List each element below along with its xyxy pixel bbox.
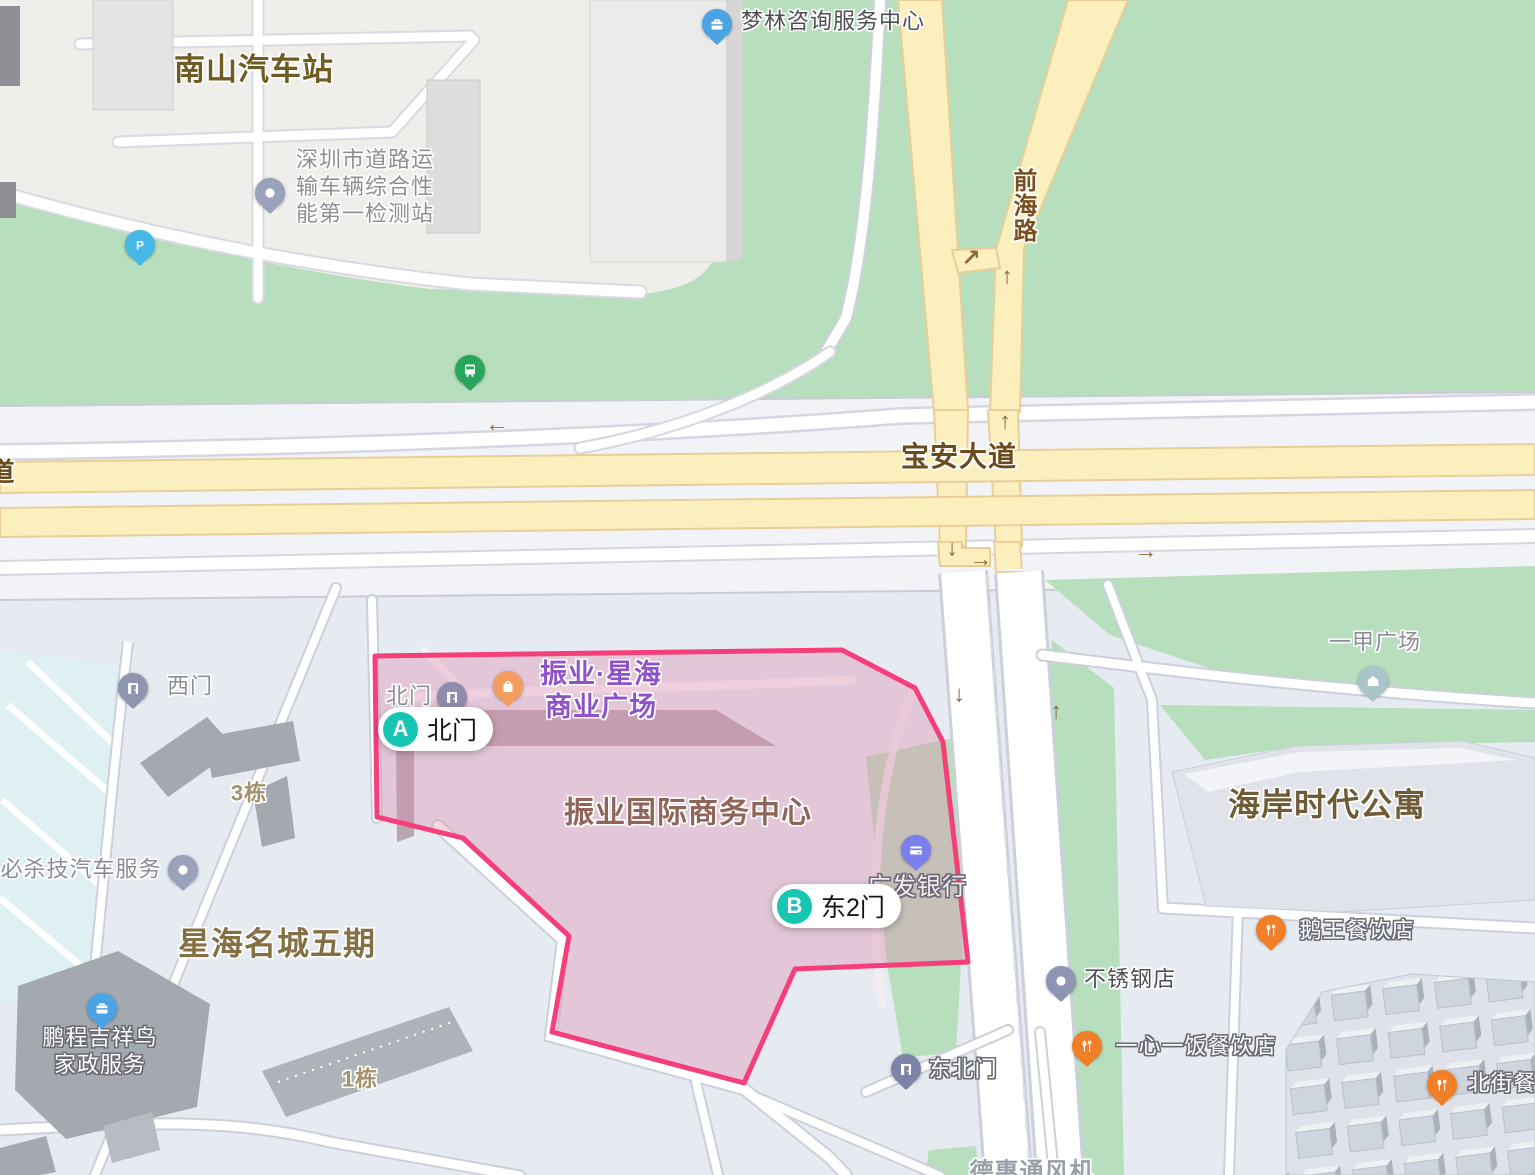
pengcheng-housekeeping-pin[interactable] bbox=[87, 993, 117, 1023]
guangfa-bank-pin[interactable] bbox=[901, 835, 931, 865]
yijia-plaza-pin[interactable] bbox=[1358, 666, 1388, 696]
bus-stop-pin[interactable] bbox=[455, 355, 485, 385]
northeast-gate-pin[interactable] bbox=[891, 1054, 921, 1084]
arrow-ne-1: ↗ bbox=[961, 245, 980, 272]
gate-marker-b[interactable]: B 东2门 bbox=[772, 884, 901, 928]
gate-b-label: 东2门 bbox=[821, 888, 885, 924]
gate-a-label: 北门 bbox=[427, 711, 477, 747]
arrow-down-2: ↓ bbox=[953, 681, 965, 708]
map-base-layer bbox=[0, 0, 1535, 1175]
haian-shidai-apartment-label: 海岸时代公寓 bbox=[1228, 785, 1426, 824]
haian-shidai-building bbox=[1172, 741, 1535, 912]
parking-pin[interactable]: P bbox=[125, 230, 155, 260]
bishaji-auto-service-label[interactable]: 必杀技汽车服务 bbox=[0, 857, 161, 884]
northeast-gate-label[interactable]: 东北门 bbox=[928, 1057, 997, 1084]
gate-a-badge: A bbox=[383, 712, 418, 747]
gate-marker-a[interactable]: A 北门 bbox=[378, 707, 493, 751]
building-3-label: 3栋 bbox=[231, 781, 267, 808]
building-1-label: 1栋 bbox=[342, 1067, 378, 1094]
arrow-right-1: → bbox=[970, 546, 993, 573]
arrow-up-2: ↑ bbox=[1001, 263, 1013, 290]
yixinyifan-restaurant-label[interactable]: 一心一饭餐饮店 bbox=[1115, 1034, 1276, 1061]
map-canvas[interactable]: A 北门 B 东2门 南山汽车站星海名城五期海岸时代公寓振业国际商务中心3栋1栋… bbox=[0, 0, 1535, 1175]
arrow-up-1: ↑ bbox=[999, 408, 1011, 435]
yixinyifan-restaurant-pin[interactable] bbox=[1072, 1031, 1102, 1061]
yijia-plaza-label[interactable]: 一甲广场 bbox=[1329, 630, 1421, 657]
arrow-down-1: ↓ bbox=[946, 535, 958, 562]
bishaji-auto-service-pin[interactable] bbox=[168, 855, 198, 885]
menglin-consulting-label[interactable]: 梦林咨询服务中心 bbox=[741, 9, 925, 36]
arrow-left-1: ← bbox=[486, 411, 509, 438]
dehui-fan-label: 德惠通风机 bbox=[970, 1157, 1095, 1175]
road-name-partial-label: 道 bbox=[0, 457, 16, 489]
west-gate-label[interactable]: 西门 bbox=[167, 674, 213, 701]
arrow-right-2: → bbox=[1135, 538, 1158, 565]
qianhai-road-label: 前海路 bbox=[1010, 168, 1034, 243]
arrow-up-3: ↑ bbox=[1050, 698, 1062, 725]
zhenye-intl-business-center-label: 振业国际商务中心 bbox=[564, 796, 812, 833]
stainless-steel-shop-pin[interactable] bbox=[1046, 966, 1076, 996]
zhenye-xinghai-plaza-label[interactable]: 振业·星海商业广场 bbox=[540, 658, 662, 724]
west-gate-pin[interactable] bbox=[118, 673, 148, 703]
shenzhen-vehicle-test-station-pin[interactable] bbox=[255, 178, 285, 208]
gate-b-badge: B bbox=[777, 889, 812, 924]
ewang-restaurant-pin[interactable] bbox=[1256, 915, 1286, 945]
menglin-consulting-pin[interactable] bbox=[702, 9, 732, 39]
ewang-restaurant-label[interactable]: 鹅王餐饮店 bbox=[1299, 918, 1414, 945]
zhenye-xinghai-plaza-pin[interactable] bbox=[493, 671, 523, 701]
stainless-steel-shop-label[interactable]: 不锈钢店 bbox=[1084, 967, 1176, 994]
svg-text:P: P bbox=[136, 239, 144, 253]
beijie-restaurant-label[interactable]: 北街餐 bbox=[1467, 1071, 1535, 1098]
shenzhen-vehicle-test-station-label[interactable]: 深圳市道路运输车辆综合性能第一检测站 bbox=[296, 147, 434, 227]
xinghai-mingcheng-5-label: 星海名城五期 bbox=[178, 924, 376, 963]
nanshan-bus-station-label: 南山汽车站 bbox=[174, 51, 334, 89]
beijie-restaurant-pin[interactable] bbox=[1427, 1070, 1457, 1100]
baoan-avenue-label: 宝安大道 bbox=[901, 440, 1017, 474]
pengcheng-housekeeping-label[interactable]: 鹏程吉祥鸟家政服务 bbox=[42, 1025, 157, 1079]
